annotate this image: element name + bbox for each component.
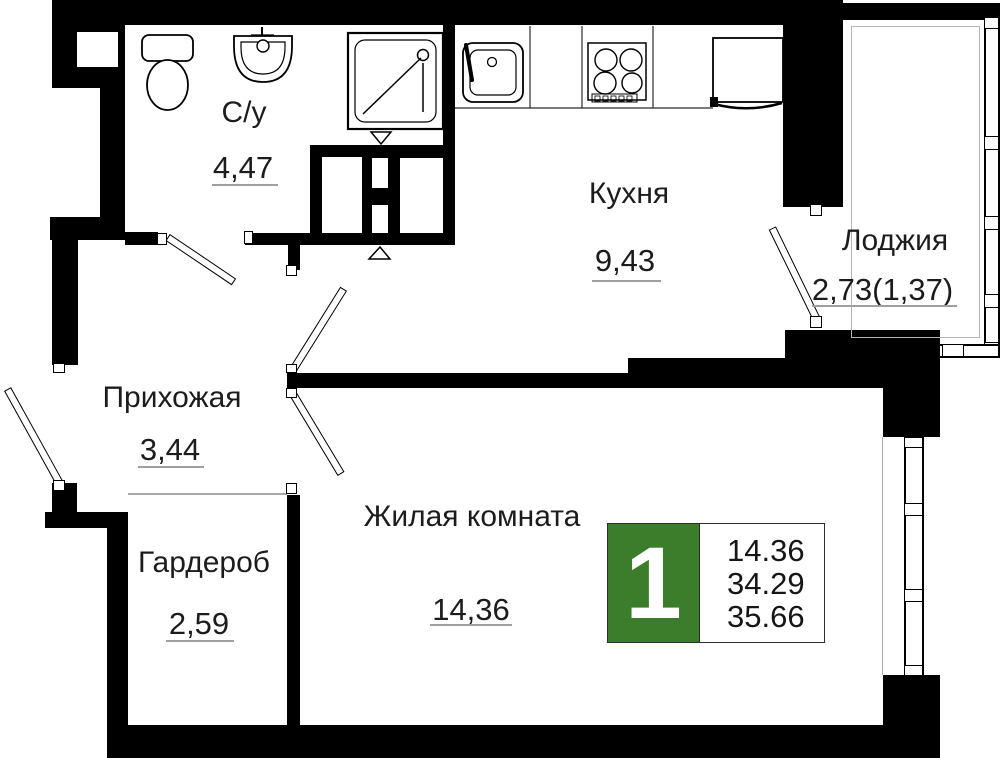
- fridge-icon: [710, 38, 783, 108]
- door-hinge: [53, 480, 65, 491]
- vent-triangle-up-icon: [369, 247, 390, 259]
- shaft-chamber: [372, 158, 388, 188]
- stove-icon: [588, 43, 646, 102]
- area-underline: [138, 466, 204, 468]
- apartment-badge: 1 14.36 34.29 35.66: [607, 523, 825, 643]
- window-mullion: [904, 437, 923, 448]
- door-hinge: [810, 204, 822, 216]
- window-mullion: [984, 294, 999, 308]
- room-area-wardrobe: 2,59: [139, 606, 259, 642]
- window-mullion: [904, 589, 923, 602]
- shaft-chamber: [372, 205, 388, 233]
- room-label-bathroom: С/у: [184, 96, 304, 130]
- room-label-living-room: Жилая комната: [347, 500, 597, 534]
- wall-segment: [52, 240, 78, 365]
- area-underline: [812, 305, 957, 307]
- room-area-living-room: 14,36: [411, 592, 531, 628]
- loggia-glazing-right: [984, 16, 1000, 356]
- area-underline: [212, 184, 278, 186]
- shower-icon: [348, 33, 443, 129]
- window-mullion: [904, 503, 923, 516]
- window-mullion: [984, 216, 999, 230]
- rooms-count-badge: 1: [608, 524, 699, 642]
- window-mullion: [904, 665, 923, 676]
- door-hinge: [244, 231, 253, 244]
- floor-plan: С/у 4,47 Кухня 9,43 Лоджия 2,73(1,37) Пр…: [0, 0, 1000, 758]
- window-mullion: [942, 344, 964, 357]
- door-hinge: [157, 233, 167, 245]
- wall-segment: [50, 217, 125, 240]
- entry-door: [4, 387, 64, 486]
- apartment-area-value: 34.29: [727, 567, 824, 600]
- door-hinge: [286, 364, 297, 373]
- door-hinge: [286, 388, 297, 398]
- wall-segment: [783, 0, 843, 207]
- shaft-chamber: [400, 158, 443, 233]
- wall-segment: [52, 0, 828, 25]
- room-label-loggia: Лоджия: [820, 224, 970, 258]
- wall-segment: [287, 373, 628, 388]
- area-underline: [592, 280, 661, 282]
- door-hinge: [286, 483, 297, 494]
- wall-segment: [785, 330, 940, 388]
- wall-niche: [77, 32, 118, 67]
- loggia-glazing-bottom: [938, 344, 1000, 358]
- open-boundary-line: [128, 493, 287, 495]
- room-area-kitchen: 9,43: [550, 243, 700, 279]
- wall-segment: [287, 495, 300, 727]
- wall-segment: [100, 88, 125, 220]
- room-area-hallway: 3,44: [110, 432, 230, 468]
- door-hinge: [286, 265, 297, 276]
- wall-segment: [125, 232, 158, 245]
- vent-triangle-down-icon: [371, 132, 391, 144]
- door-hinge: [53, 363, 65, 373]
- wall-segment: [443, 25, 455, 157]
- kitchen-sink-icon: [463, 43, 523, 102]
- living-room-window: [904, 437, 924, 675]
- room-area-bathroom: 4,47: [183, 150, 303, 186]
- room-label-hallway: Прихожая: [91, 381, 253, 415]
- shaft-chamber: [322, 157, 362, 233]
- wall-segment: [826, 3, 1000, 20]
- wall-segment: [45, 512, 128, 528]
- window-mullion: [984, 136, 999, 150]
- room-label-wardrobe: Гардероб: [123, 546, 285, 580]
- wall-segment: [107, 725, 883, 758]
- area-underline: [430, 624, 512, 626]
- living-area-value: 14.36: [727, 534, 824, 567]
- window-bay-line: [882, 437, 883, 675]
- wall-segment: [883, 385, 940, 437]
- room-area-loggia: 2,73(1,37): [800, 272, 965, 308]
- bathroom-door: [165, 234, 236, 285]
- hallway-kitchen-door: [290, 287, 347, 372]
- total-area-value: 35.66: [727, 600, 824, 633]
- wall-segment: [883, 675, 940, 758]
- area-underline: [166, 640, 234, 642]
- window-mullion: [984, 17, 999, 29]
- apartment-areas: 14.36 34.29 35.66: [699, 524, 824, 642]
- wall-segment: [628, 358, 785, 388]
- door-hinge: [810, 316, 822, 328]
- kitchen-counter: [455, 26, 713, 108]
- bathroom-sink-icon: [234, 27, 292, 82]
- wardrobe-door: [288, 390, 344, 476]
- room-label-kitchen: Кухня: [554, 177, 704, 211]
